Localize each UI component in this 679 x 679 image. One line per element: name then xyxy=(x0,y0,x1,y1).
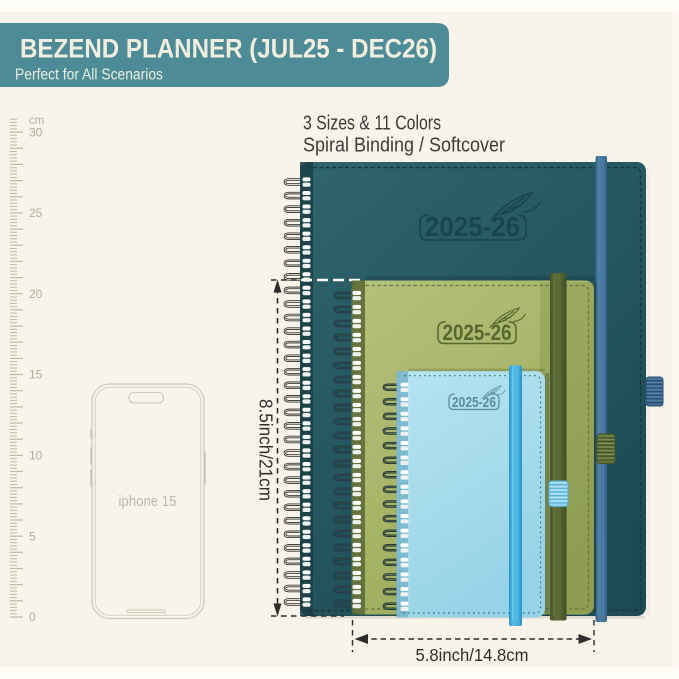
svg-text:Spiral Binding / Softcover: Spiral Binding / Softcover xyxy=(303,135,505,157)
svg-text:BEZEND PLANNER (JUL25 - DEC26): BEZEND PLANNER (JUL25 - DEC26) xyxy=(20,34,437,64)
svg-text:20: 20 xyxy=(29,287,43,301)
svg-text:5.8inch/14.8cm: 5.8inch/14.8cm xyxy=(416,645,529,665)
svg-text:8.5inch/21cm: 8.5inch/21cm xyxy=(256,399,276,501)
svg-text:10: 10 xyxy=(29,449,43,463)
svg-text:0: 0 xyxy=(29,610,36,624)
svg-text:cm: cm xyxy=(29,115,44,127)
svg-text:30: 30 xyxy=(29,125,43,139)
svg-text:2025-26: 2025-26 xyxy=(443,320,512,345)
svg-text:2025-26: 2025-26 xyxy=(425,211,520,242)
svg-text:5: 5 xyxy=(29,529,36,543)
svg-text:25: 25 xyxy=(29,206,43,220)
svg-text:3 Sizes & 11 Colors: 3 Sizes & 11 Colors xyxy=(303,113,441,135)
svg-text:Perfect for All Scenarios: Perfect for All Scenarios xyxy=(15,67,163,84)
svg-text:15: 15 xyxy=(29,368,43,382)
svg-text:iphone 15: iphone 15 xyxy=(119,493,177,510)
svg-text:2025-26: 2025-26 xyxy=(452,394,496,411)
